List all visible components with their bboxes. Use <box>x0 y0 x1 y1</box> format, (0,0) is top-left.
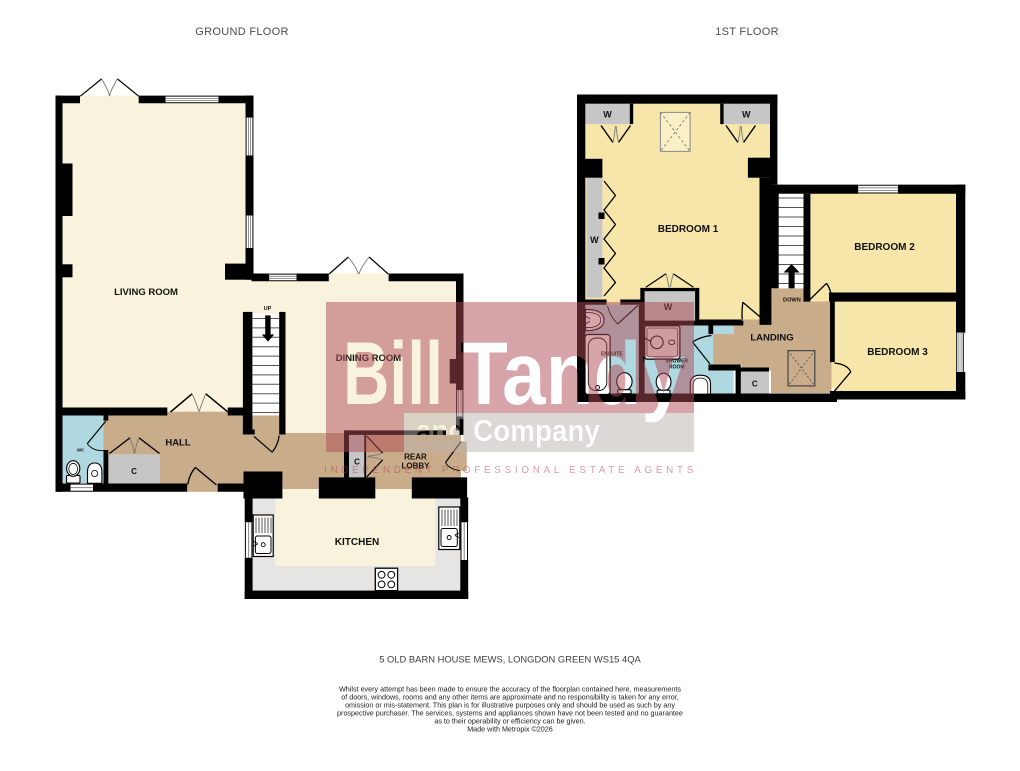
svg-text:UP: UP <box>264 306 272 312</box>
svg-text:W: W <box>742 110 751 120</box>
svg-text:W: W <box>603 110 612 120</box>
svg-text:C: C <box>752 380 758 389</box>
svg-text:LANDING: LANDING <box>750 333 793 344</box>
svg-text:KITCHEN: KITCHEN <box>335 537 379 548</box>
svg-text:BEDROOM 3: BEDROOM 3 <box>867 347 928 358</box>
svg-text:WC: WC <box>77 448 85 453</box>
svg-text:HALL: HALL <box>165 438 191 449</box>
svg-text:DOWN: DOWN <box>783 298 801 304</box>
svg-text:C: C <box>131 467 137 476</box>
svg-text:LIVING ROOM: LIVING ROOM <box>114 287 178 298</box>
svg-text:REAR: REAR <box>404 453 427 462</box>
svg-text:INDEPENDENT PROFESSIONAL ESTAT: INDEPENDENT PROFESSIONAL ESTATE AGENTS <box>324 464 697 476</box>
svg-text:GROUND FLOOR: GROUND FLOOR <box>195 26 288 38</box>
svg-text:1ST FLOOR: 1ST FLOOR <box>715 26 779 38</box>
svg-text:W: W <box>590 235 599 245</box>
svg-text:Made with Metropix ©2026: Made with Metropix ©2026 <box>467 725 553 734</box>
svg-text:5 OLD BARN HOUSE MEWS, LONGDON: 5 OLD BARN HOUSE MEWS, LONGDON GREEN WS1… <box>379 654 641 665</box>
svg-text:BEDROOM 1: BEDROOM 1 <box>658 224 719 235</box>
svg-text:BEDROOM 2: BEDROOM 2 <box>854 242 915 253</box>
